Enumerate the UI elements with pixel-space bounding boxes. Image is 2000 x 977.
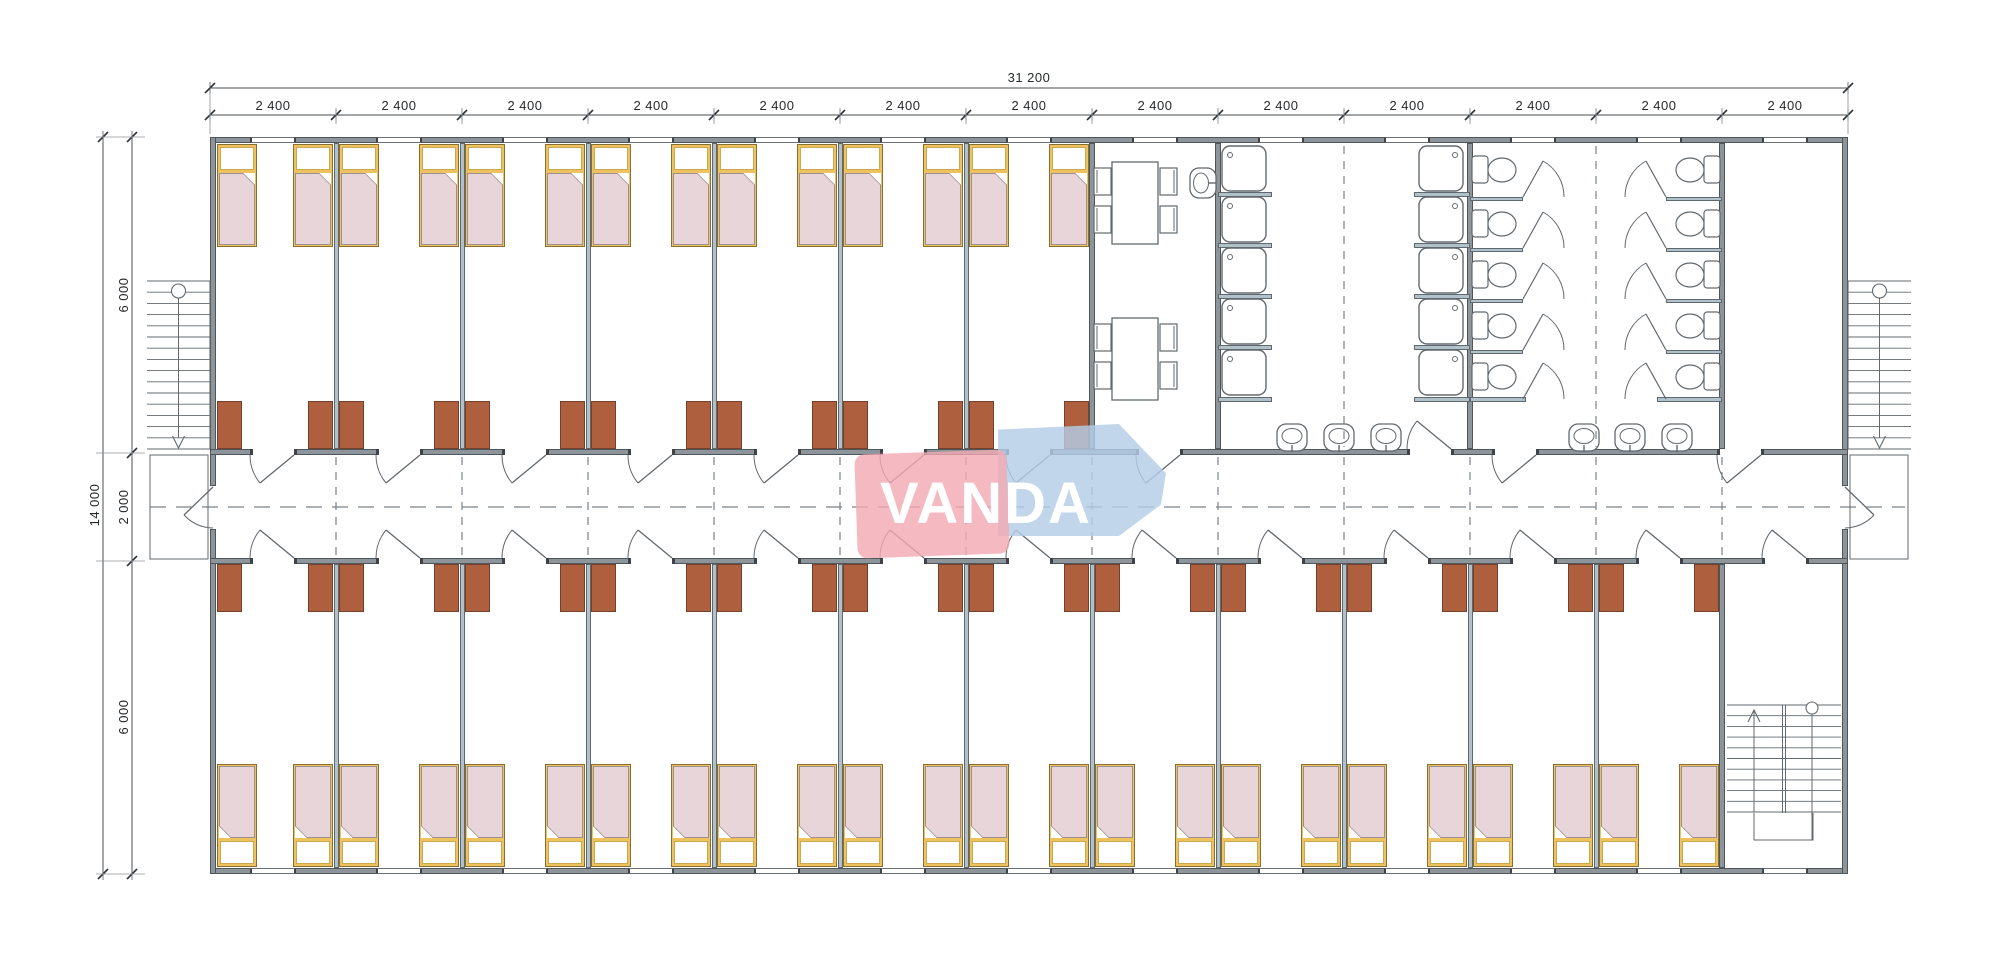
door-icon: [184, 487, 213, 515]
toilet-icon: [1472, 312, 1488, 339]
door-swing-arc: [1543, 263, 1564, 299]
door-icon: [1523, 363, 1543, 399]
door-icon: [512, 455, 546, 483]
toilet-icon: [1704, 210, 1720, 237]
dimension-label: 2 400: [588, 98, 714, 113]
dining-table-icon: [1112, 318, 1158, 400]
door-icon: [1646, 161, 1666, 197]
door-swing-arc: [184, 515, 213, 528]
door-icon: [1142, 530, 1176, 558]
door-icon: [764, 530, 798, 558]
toilet-icon: [1488, 365, 1516, 389]
toilet-icon: [1488, 314, 1516, 338]
dimension-label: 31 200: [929, 70, 1129, 85]
door-swing-arc: [754, 530, 764, 558]
dimension-label: 2 400: [966, 98, 1092, 113]
stair-start-circle: [172, 284, 186, 298]
door-swing-arc: [1407, 421, 1417, 449]
door-icon: [1417, 421, 1451, 449]
door-swing-arc: [1543, 314, 1564, 350]
dimension-label: 2 400: [336, 98, 462, 113]
dimension-label: 2 400: [210, 98, 336, 113]
toilet-icon: [1704, 156, 1720, 183]
door-swing-arc: [1625, 363, 1646, 399]
toilet-icon: [1704, 261, 1720, 288]
floor-plan: 31 2002 4002 4002 4002 4002 4002 4002 40…: [0, 0, 2000, 977]
dimension-label: 2 400: [1596, 98, 1722, 113]
toilet-icon: [1488, 158, 1516, 182]
dimension-label: 2 400: [1470, 98, 1596, 113]
toilet-icon: [1472, 261, 1488, 288]
door-icon: [1646, 263, 1666, 299]
door-icon: [386, 455, 420, 483]
door-icon: [1394, 530, 1428, 558]
toilet-icon: [1676, 314, 1704, 338]
door-icon: [1727, 455, 1761, 483]
door-swing-arc: [628, 530, 638, 558]
door-icon: [1520, 530, 1554, 558]
dimension-label: 2 400: [1722, 98, 1848, 113]
door-swing-arc: [754, 455, 764, 483]
door-swing-arc: [1543, 212, 1564, 248]
door-swing-arc: [250, 455, 260, 483]
door-icon: [1772, 530, 1806, 558]
door-swing-arc: [1258, 530, 1268, 558]
door-swing-arc: [1762, 530, 1772, 558]
interior-staircase: [1754, 813, 1813, 840]
door-icon: [1845, 487, 1874, 515]
door-icon: [1646, 212, 1666, 248]
dimension-label: 2 400: [462, 98, 588, 113]
dimension-label: 2 000: [116, 472, 132, 542]
door-swing-arc: [1384, 530, 1394, 558]
toilet-icon: [1488, 212, 1516, 236]
door-icon: [1523, 314, 1543, 350]
door-icon: [386, 530, 420, 558]
dimension-label: 2 400: [1092, 98, 1218, 113]
toilet-icon: [1704, 363, 1720, 390]
dining-table-icon: [1112, 162, 1158, 244]
stair-start-circle: [1806, 702, 1818, 714]
door-swing-arc: [1636, 530, 1646, 558]
toilet-icon: [1676, 158, 1704, 182]
door-swing-arc: [1492, 455, 1502, 483]
dimension-label: 2 400: [840, 98, 966, 113]
door-icon: [260, 530, 294, 558]
door-icon: [260, 455, 294, 483]
dimension-label: 6 000: [116, 682, 132, 752]
toilet-icon: [1472, 363, 1488, 390]
door-swing-arc: [502, 530, 512, 558]
door-icon: [1268, 530, 1302, 558]
toilet-icon: [1704, 312, 1720, 339]
toilet-icon: [1472, 156, 1488, 183]
stair-start-circle: [1873, 284, 1887, 298]
door-icon: [638, 455, 672, 483]
toilet-icon: [1676, 365, 1704, 389]
dimension-label: 6 000: [116, 260, 132, 330]
dimension-label: 14 000: [87, 470, 103, 540]
door-swing-arc: [1625, 212, 1646, 248]
toilet-icon: [1472, 210, 1488, 237]
door-swing-arc: [376, 530, 386, 558]
door-swing-arc: [1543, 363, 1564, 399]
door-icon: [1523, 161, 1543, 197]
toilet-icon: [1676, 263, 1704, 287]
door-icon: [1523, 263, 1543, 299]
door-swing-arc: [1625, 263, 1646, 299]
door-swing-arc: [628, 455, 638, 483]
door-icon: [1646, 314, 1666, 350]
door-icon: [638, 530, 672, 558]
door-swing-arc: [376, 455, 386, 483]
dimension-label: 2 400: [1218, 98, 1344, 113]
door-swing-arc: [502, 455, 512, 483]
door-icon: [1646, 363, 1666, 399]
door-swing-arc: [1132, 530, 1142, 558]
dimension-label: 2 400: [1344, 98, 1470, 113]
watermark-text: VANDA: [880, 470, 1092, 537]
toilet-icon: [1676, 212, 1704, 236]
door-icon: [512, 530, 546, 558]
door-swing-arc: [1625, 314, 1646, 350]
door-swing-arc: [1510, 530, 1520, 558]
dimension-label: 2 400: [714, 98, 840, 113]
door-icon: [764, 455, 798, 483]
toilet-icon: [1488, 263, 1516, 287]
door-icon: [1502, 455, 1536, 483]
door-swing-arc: [1543, 161, 1564, 197]
door-swing-arc: [1845, 515, 1874, 528]
door-swing-arc: [250, 530, 260, 558]
door-swing-arc: [1625, 161, 1646, 197]
door-icon: [1646, 530, 1680, 558]
door-icon: [1523, 212, 1543, 248]
